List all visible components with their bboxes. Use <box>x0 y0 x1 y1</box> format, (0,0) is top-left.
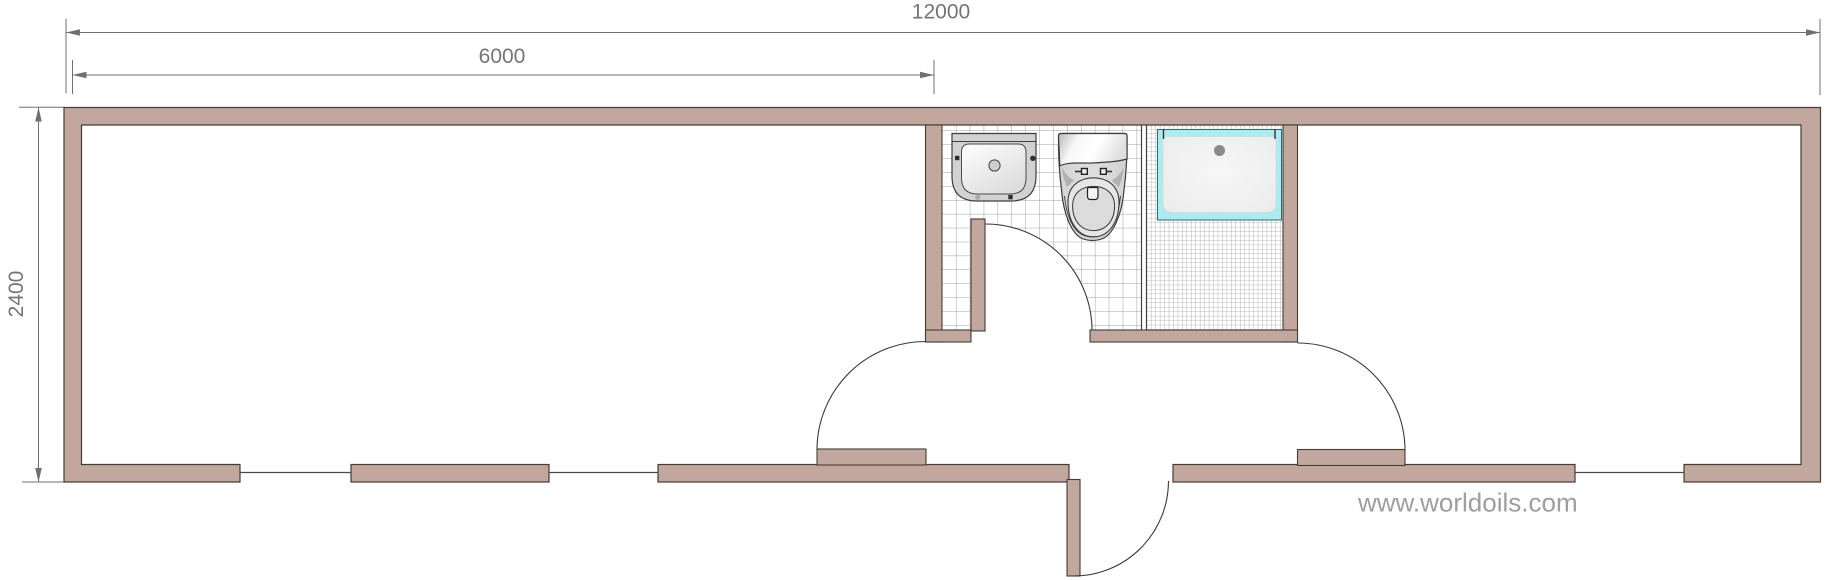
svg-text:2400: 2400 <box>5 271 28 318</box>
svg-text:6000: 6000 <box>479 45 526 68</box>
svg-text:www.worldoils.com: www.worldoils.com <box>1357 488 1578 518</box>
svg-text:12000: 12000 <box>912 1 970 24</box>
